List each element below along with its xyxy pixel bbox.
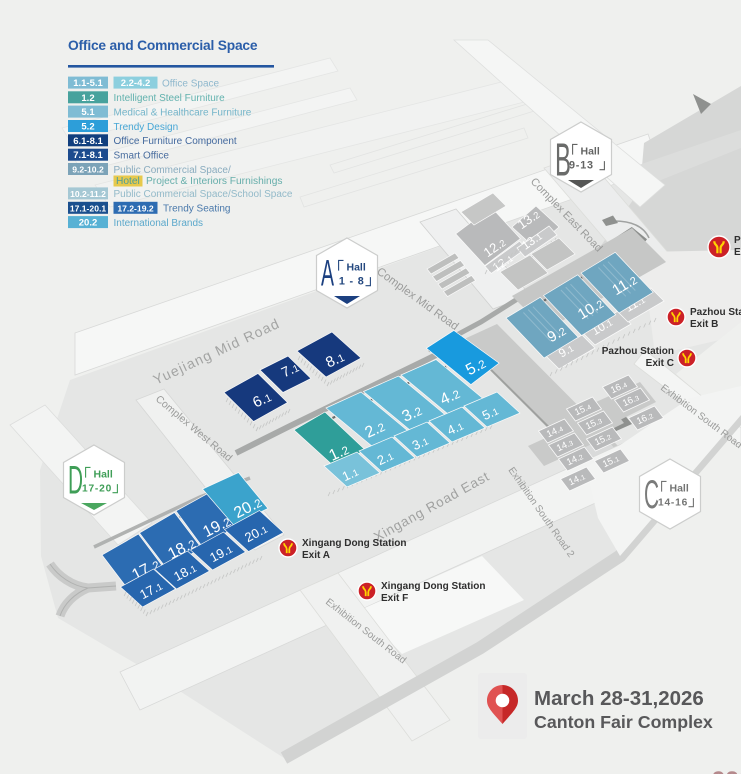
svg-text:D: D bbox=[68, 457, 83, 502]
svg-text:Hotel: Hotel bbox=[116, 176, 140, 187]
svg-text:1.2: 1.2 bbox=[81, 93, 94, 104]
svg-text:Medical & Healthcare Furniture: Medical & Healthcare Furniture bbox=[114, 107, 252, 118]
svg-text:Office Furniture Component: Office Furniture Component bbox=[114, 136, 237, 147]
svg-text:Exit B: Exit B bbox=[690, 319, 718, 330]
svg-text:17.1-20.1: 17.1-20.1 bbox=[70, 203, 107, 213]
svg-text:Project & Interiors Furnishing: Project & Interiors Furnishings bbox=[146, 176, 282, 187]
svg-text:Trendy Seating: Trendy Seating bbox=[163, 204, 230, 215]
svg-text:Pazhou Station: Pazhou Station bbox=[602, 346, 674, 357]
svg-text:Xingang Dong Station: Xingang Dong Station bbox=[302, 538, 406, 549]
svg-text:Public Commercial Space/School: Public Commercial Space/School Space bbox=[114, 189, 293, 200]
svg-text:Exit F: Exit F bbox=[381, 593, 408, 604]
svg-text:Exit C: Exit C bbox=[646, 358, 674, 369]
svg-text:5.1: 5.1 bbox=[81, 107, 95, 118]
svg-text:P: P bbox=[734, 235, 741, 246]
svg-text:Office and Commercial Space: Office and Commercial Space bbox=[68, 38, 258, 53]
svg-text:10.2-11.2: 10.2-11.2 bbox=[70, 189, 106, 199]
svg-text:A: A bbox=[321, 253, 334, 294]
svg-text:20.2: 20.2 bbox=[79, 218, 98, 229]
svg-text:920: 920 bbox=[712, 767, 741, 774]
svg-text:Xingang Dong Station: Xingang Dong Station bbox=[381, 581, 485, 592]
svg-text:6.1-8.1: 6.1-8.1 bbox=[73, 136, 103, 147]
svg-text:March 28-31,2026: March 28-31,2026 bbox=[534, 687, 704, 710]
svg-text:Hall: Hall bbox=[581, 146, 600, 158]
svg-text:Trendy Design: Trendy Design bbox=[114, 122, 179, 133]
svg-text:1.1-5.1: 1.1-5.1 bbox=[73, 78, 103, 89]
svg-text:14-16: 14-16 bbox=[658, 498, 688, 509]
svg-text:Hall: Hall bbox=[670, 483, 689, 495]
svg-text:International Brands: International Brands bbox=[114, 218, 204, 229]
svg-text:Canton Fair Complex: Canton Fair Complex bbox=[534, 712, 713, 732]
svg-text:Hall: Hall bbox=[94, 469, 113, 481]
svg-text:Office Space: Office Space bbox=[162, 78, 220, 89]
svg-text:1 - 8: 1 - 8 bbox=[339, 276, 365, 288]
svg-text:9.2-10.2: 9.2-10.2 bbox=[72, 165, 104, 175]
svg-text:9-13: 9-13 bbox=[569, 160, 594, 172]
svg-text:Exit A: Exit A bbox=[302, 550, 330, 561]
svg-text:17-20: 17-20 bbox=[82, 484, 112, 495]
svg-text:C: C bbox=[644, 472, 659, 517]
svg-text:Smart Office: Smart Office bbox=[114, 151, 170, 162]
svg-text:Intelligent Steel Furniture: Intelligent Steel Furniture bbox=[114, 93, 226, 104]
svg-text:Pazhou Stati: Pazhou Stati bbox=[690, 307, 741, 318]
svg-text:Public Commercial Space/: Public Commercial Space/ bbox=[114, 165, 231, 176]
svg-text:5.2: 5.2 bbox=[81, 122, 94, 133]
svg-text:2.2-4.2: 2.2-4.2 bbox=[121, 78, 151, 89]
svg-text:E: E bbox=[734, 247, 741, 258]
svg-text:17.2-19.2: 17.2-19.2 bbox=[117, 203, 154, 213]
svg-text:Hall: Hall bbox=[347, 262, 366, 274]
svg-text:7.1-8.1: 7.1-8.1 bbox=[73, 150, 103, 161]
